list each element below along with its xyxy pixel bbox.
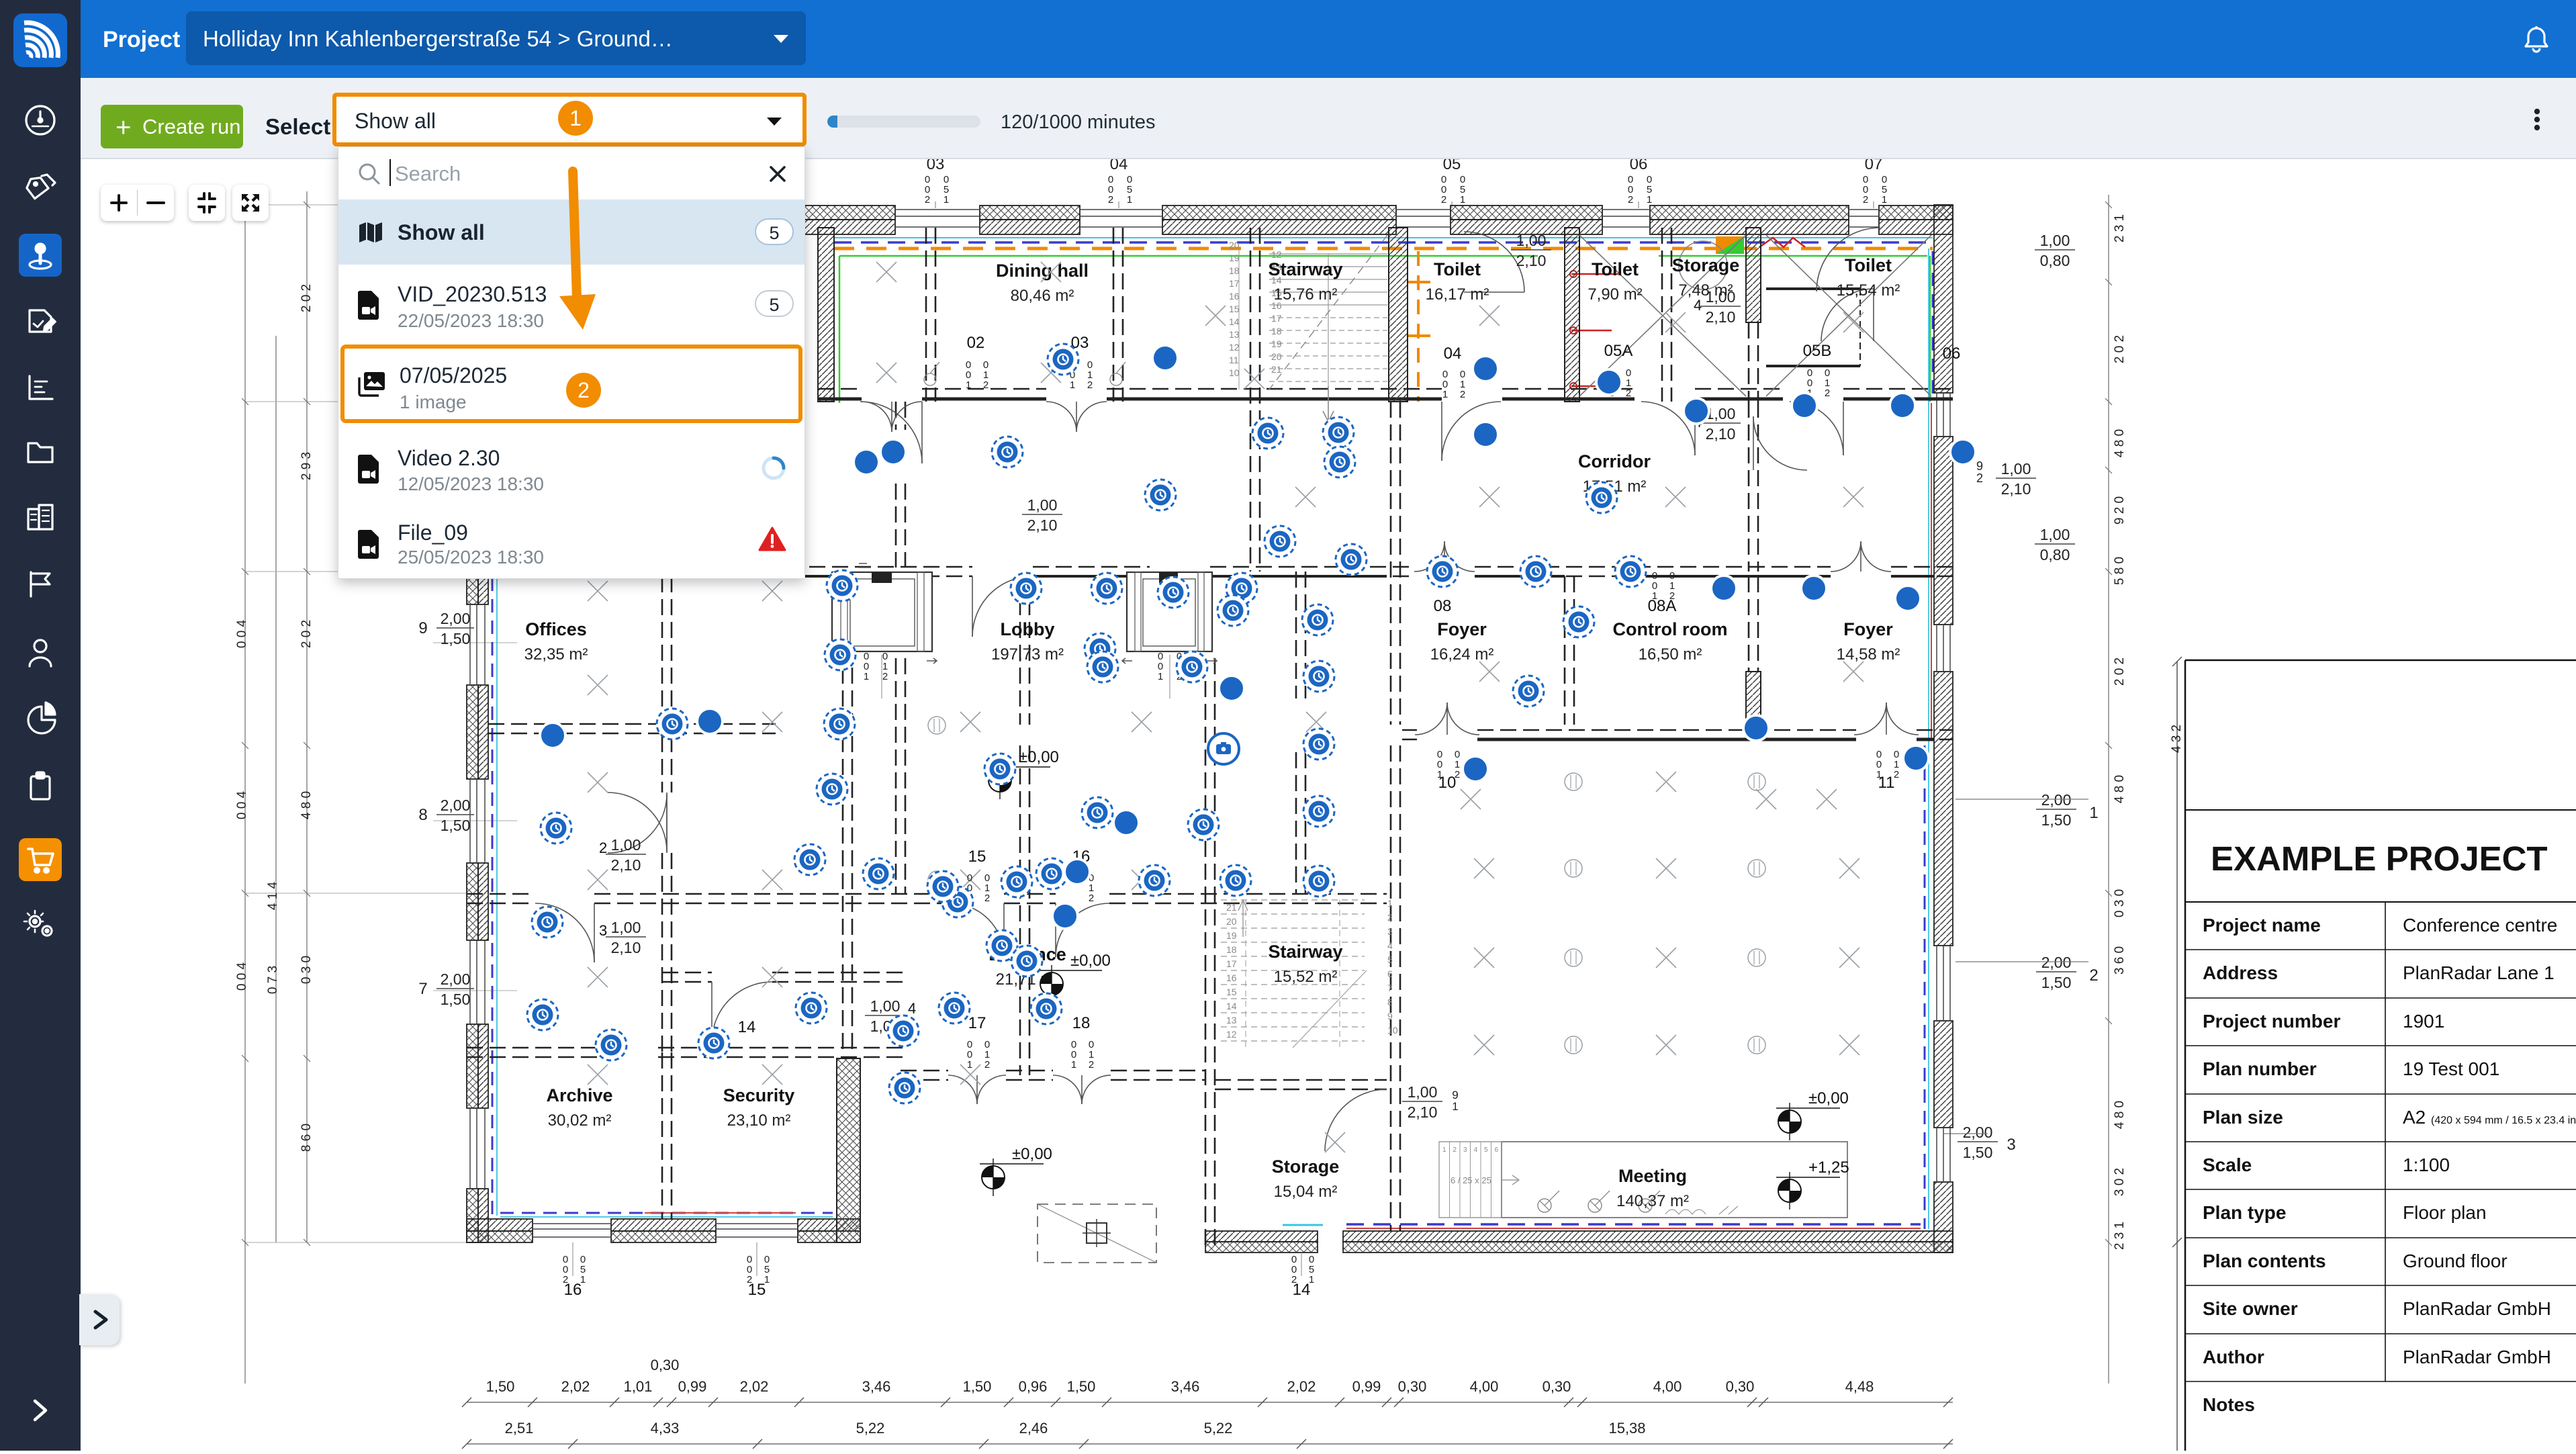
svg-text:12: 12 <box>1229 342 1240 353</box>
svg-text:4 8 0: 4 8 0 <box>2113 775 2127 803</box>
svg-text:2: 2 <box>882 671 888 682</box>
svg-text:2: 2 <box>563 1274 568 1285</box>
svg-text:Toilet: Toilet <box>1434 259 1481 279</box>
svg-text:8: 8 <box>418 806 427 824</box>
svg-text:2 0 2: 2 0 2 <box>2113 657 2127 686</box>
svg-text:Scale: Scale <box>2203 1154 2252 1175</box>
svg-text:Meeting: Meeting <box>1618 1166 1687 1186</box>
svg-text:3,46: 3,46 <box>1171 1378 1200 1395</box>
svg-text:2,00: 2,00 <box>2041 954 2072 971</box>
svg-text:Foyer: Foyer <box>1843 619 1893 639</box>
svg-text:20: 20 <box>1271 351 1282 362</box>
svg-text:6: 6 <box>1495 1146 1499 1154</box>
svg-text:05A: 05A <box>1604 342 1633 360</box>
svg-text:Plan number: Plan number <box>2203 1058 2317 1079</box>
svg-text:17: 17 <box>1271 313 1282 324</box>
svg-text:Storage: Storage <box>1272 1156 1340 1177</box>
svg-text:4,00: 4,00 <box>1653 1378 1682 1395</box>
svg-text:1,50: 1,50 <box>1067 1378 1096 1395</box>
svg-text:2: 2 <box>2089 966 2098 985</box>
svg-text:1:100: 1:100 <box>2403 1154 2450 1175</box>
svg-text:1,01: 1,01 <box>624 1378 653 1395</box>
svg-text:7: 7 <box>418 980 427 998</box>
svg-text:05: 05 <box>1443 159 1461 173</box>
svg-text:20: 20 <box>1226 916 1237 927</box>
svg-text:2 9 3: 2 9 3 <box>300 452 314 480</box>
svg-text:1: 1 <box>1442 389 1448 400</box>
svg-text:15,38: 15,38 <box>1608 1420 1645 1437</box>
svg-text:±0,00: ±0,00 <box>1012 1145 1052 1163</box>
svg-text:2: 2 <box>1669 590 1675 602</box>
svg-text:Control room: Control room <box>1613 619 1728 639</box>
svg-text:2 0 2: 2 0 2 <box>2113 335 2127 363</box>
svg-text:4 8 0: 4 8 0 <box>2113 429 2127 457</box>
svg-text:2: 2 <box>1460 389 1465 400</box>
svg-text:1: 1 <box>1158 671 1163 682</box>
svg-text:19: 19 <box>1271 338 1282 349</box>
svg-text:1: 1 <box>864 671 869 682</box>
svg-text:1: 1 <box>967 1059 972 1071</box>
svg-text:80,46 m²: 80,46 m² <box>1011 287 1074 305</box>
svg-text:2: 2 <box>1087 379 1093 391</box>
svg-text:0 0 4: 0 0 4 <box>235 962 249 991</box>
svg-text:0,80: 0,80 <box>2040 252 2070 269</box>
svg-text:2: 2 <box>1089 1059 1094 1071</box>
svg-text:2,10: 2,10 <box>1408 1103 1438 1121</box>
svg-text:2,10: 2,10 <box>611 939 641 956</box>
svg-text:11: 11 <box>1229 355 1239 365</box>
svg-text:9: 9 <box>418 619 427 637</box>
svg-text:2,10: 2,10 <box>1516 252 1547 269</box>
svg-text:2: 2 <box>983 379 988 391</box>
svg-text:Corridor: Corridor <box>1578 451 1651 471</box>
svg-text:4: 4 <box>908 1000 916 1017</box>
svg-text:05B: 05B <box>1803 342 1832 360</box>
svg-text:16: 16 <box>1229 291 1240 302</box>
svg-text:1,00: 1,00 <box>2001 460 2031 478</box>
svg-text:15: 15 <box>1229 304 1240 314</box>
svg-text:2: 2 <box>747 1274 752 1285</box>
svg-text:1: 1 <box>1647 194 1652 206</box>
svg-text:4,00: 4,00 <box>1470 1378 1499 1395</box>
svg-text:5: 5 <box>1387 954 1393 965</box>
svg-text:13: 13 <box>1226 1015 1237 1026</box>
svg-text:9 2 0: 9 2 0 <box>2113 496 2127 525</box>
svg-text:+1,25: +1,25 <box>1808 1158 1849 1177</box>
svg-text:1,00: 1,00 <box>870 997 901 1015</box>
svg-text:8 6 0: 8 6 0 <box>300 1124 314 1152</box>
svg-text:Stairway: Stairway <box>1268 259 1342 279</box>
svg-text:Conference centre: Conference centre <box>2403 915 2557 936</box>
svg-text:2,02: 2,02 <box>561 1378 590 1395</box>
svg-text:2 3 1: 2 3 1 <box>2113 1222 2127 1250</box>
svg-text:19: 19 <box>1229 253 1240 263</box>
svg-text:2,00: 2,00 <box>2041 791 2072 809</box>
svg-text:3: 3 <box>1463 1146 1467 1154</box>
svg-text:2: 2 <box>1628 194 1633 206</box>
svg-text:15,04 m²: 15,04 m² <box>1274 1183 1338 1201</box>
svg-text:±0,00: ±0,00 <box>1019 748 1059 766</box>
svg-text:2: 2 <box>1387 912 1393 923</box>
svg-text:2: 2 <box>984 893 990 904</box>
svg-text:1: 1 <box>1127 194 1132 206</box>
svg-text:7: 7 <box>1387 983 1393 993</box>
svg-text:15,54 m²: 15,54 m² <box>1837 281 1900 300</box>
svg-text:Plan type: Plan type <box>2203 1202 2286 1223</box>
svg-text:7,90 m²: 7,90 m² <box>1588 285 1642 304</box>
svg-text:5,22: 5,22 <box>1204 1420 1233 1437</box>
svg-text:2: 2 <box>1291 1274 1297 1285</box>
svg-text:2: 2 <box>1108 194 1113 206</box>
svg-text:2: 2 <box>984 1059 990 1071</box>
svg-text:1,50: 1,50 <box>963 1378 992 1395</box>
svg-text:18: 18 <box>1072 1014 1091 1032</box>
svg-text:16,50 m²: 16,50 m² <box>1639 645 1702 664</box>
svg-text:2: 2 <box>1626 388 1631 399</box>
svg-text:Offices: Offices <box>525 619 587 639</box>
svg-text:14: 14 <box>1226 1001 1237 1011</box>
svg-text:17: 17 <box>1226 958 1237 969</box>
svg-text:3 0 2: 3 0 2 <box>2113 1168 2127 1196</box>
svg-text:5: 5 <box>1484 1146 1488 1154</box>
svg-text:5,22: 5,22 <box>856 1420 885 1437</box>
svg-text:06: 06 <box>1943 345 1961 363</box>
svg-text:1,50: 1,50 <box>2041 811 2072 829</box>
svg-text:04: 04 <box>1444 345 1462 363</box>
svg-text:2,02: 2,02 <box>1287 1378 1316 1395</box>
svg-text:2: 2 <box>1863 194 1868 206</box>
svg-text:0 3 0: 0 3 0 <box>300 956 314 984</box>
svg-text:19 Test 001: 19 Test 001 <box>2403 1058 2499 1079</box>
svg-text:2: 2 <box>1825 388 1830 399</box>
svg-text:18: 18 <box>1229 265 1240 276</box>
svg-text:Archive: Archive <box>546 1085 612 1105</box>
svg-text:1: 1 <box>764 1274 770 1285</box>
svg-text:140,37 m²: 140,37 m² <box>1616 1192 1689 1210</box>
svg-text:08: 08 <box>1434 597 1452 615</box>
svg-text:4: 4 <box>1694 297 1702 314</box>
svg-text:1,00: 1,00 <box>1027 496 1058 514</box>
svg-text:2,00: 2,00 <box>441 797 471 814</box>
svg-text:Storage: Storage <box>1672 255 1740 275</box>
svg-text:3: 3 <box>599 922 607 939</box>
svg-text:1,00: 1,00 <box>611 836 641 854</box>
svg-text:2: 2 <box>1089 893 1094 904</box>
svg-text:±0,00: ±0,00 <box>1070 952 1111 970</box>
svg-text:Notes: Notes <box>2203 1394 2255 1415</box>
svg-text:19: 19 <box>1226 930 1237 941</box>
svg-text:2 3 1: 2 3 1 <box>2113 214 2127 242</box>
svg-text:4,48: 4,48 <box>1845 1378 1874 1395</box>
svg-text:10: 10 <box>1387 1025 1398 1036</box>
svg-text:15,52 m²: 15,52 m² <box>1274 968 1338 986</box>
svg-text:0,99: 0,99 <box>1352 1378 1381 1395</box>
svg-text:12: 12 <box>1226 1029 1237 1040</box>
svg-text:Plan contents: Plan contents <box>2203 1251 2326 1271</box>
svg-text:2,10: 2,10 <box>1706 308 1736 326</box>
svg-text:2,10: 2,10 <box>611 856 641 874</box>
svg-text:PlanRadar GmbH: PlanRadar GmbH <box>2403 1347 2551 1367</box>
svg-text:16,17 m²: 16,17 m² <box>1426 285 1489 304</box>
svg-text:Foyer: Foyer <box>1437 619 1487 639</box>
svg-text:4 1 4: 4 1 4 <box>266 881 280 910</box>
svg-text:2,00: 2,00 <box>1963 1124 1993 1141</box>
svg-text:06: 06 <box>1630 159 1648 173</box>
svg-text:0,80: 0,80 <box>2040 546 2070 563</box>
svg-text:4 8 0: 4 8 0 <box>2113 1101 2127 1129</box>
svg-text:14: 14 <box>1229 316 1240 327</box>
svg-text:1: 1 <box>1460 194 1465 206</box>
svg-text:1: 1 <box>1071 1059 1076 1071</box>
svg-text:16: 16 <box>1226 972 1237 983</box>
svg-text:20: 20 <box>1229 240 1240 251</box>
svg-text:2,10: 2,10 <box>1027 516 1058 534</box>
svg-text:2 0 2: 2 0 2 <box>300 620 314 648</box>
svg-text:03: 03 <box>927 159 945 173</box>
svg-text:0 7 3: 0 7 3 <box>266 966 280 994</box>
svg-text:Lobby: Lobby <box>1001 619 1055 639</box>
svg-text:13: 13 <box>1229 329 1240 340</box>
svg-text:1: 1 <box>1882 194 1887 206</box>
svg-text:1,00: 1,00 <box>1516 232 1547 249</box>
svg-text:3: 3 <box>1387 926 1393 937</box>
svg-text:1: 1 <box>1442 1146 1446 1154</box>
svg-text:1: 1 <box>966 379 971 391</box>
svg-text:4: 4 <box>1474 1146 1478 1154</box>
svg-text:4: 4 <box>1387 940 1393 951</box>
svg-text:1,50: 1,50 <box>441 630 471 647</box>
svg-text:10: 10 <box>1229 367 1240 378</box>
svg-text:2 0 2: 2 0 2 <box>300 284 314 312</box>
svg-text:14,58 m²: 14,58 m² <box>1837 645 1900 664</box>
svg-text:2,46: 2,46 <box>1019 1420 1048 1437</box>
svg-text:1,00: 1,00 <box>611 919 641 936</box>
svg-text:1,00: 1,00 <box>1408 1083 1438 1101</box>
svg-text:6 / 25 x 25: 6 / 25 x 25 <box>1451 1175 1491 1185</box>
svg-text:1: 1 <box>580 1274 586 1285</box>
svg-text:0 0 4: 0 0 4 <box>235 790 249 819</box>
svg-text:12: 12 <box>1271 249 1282 260</box>
svg-text:6: 6 <box>1387 968 1393 979</box>
svg-text:1,50: 1,50 <box>441 991 471 1008</box>
svg-text:PlanRadar Lane 1: PlanRadar Lane 1 <box>2403 962 2555 983</box>
svg-text:21: 21 <box>1271 364 1282 375</box>
svg-text:Author: Author <box>2203 1347 2264 1367</box>
svg-text:Address: Address <box>2203 962 2278 983</box>
svg-text:9: 9 <box>1976 459 1983 473</box>
svg-text:30,02 m²: 30,02 m² <box>548 1111 612 1130</box>
svg-text:0 3 0: 0 3 0 <box>2113 889 2127 917</box>
svg-text:0,96: 0,96 <box>1019 1378 1048 1395</box>
svg-text:16,24 m²: 16,24 m² <box>1430 645 1494 664</box>
svg-text:5 8 0: 5 8 0 <box>2113 557 2127 585</box>
svg-text:197,73 m²: 197,73 m² <box>991 645 1064 664</box>
svg-text:4,33: 4,33 <box>651 1420 680 1437</box>
svg-text:Stairway: Stairway <box>1268 942 1342 962</box>
svg-text:1: 1 <box>944 194 949 206</box>
svg-text:3: 3 <box>2007 1136 2015 1154</box>
svg-text:14: 14 <box>738 1018 756 1036</box>
svg-text:2,00: 2,00 <box>441 610 471 627</box>
svg-text:1: 1 <box>1437 769 1442 780</box>
svg-text:23,10 m²: 23,10 m² <box>727 1111 791 1130</box>
svg-text:3,46: 3,46 <box>862 1378 891 1395</box>
svg-text:15,76 m²: 15,76 m² <box>1274 285 1338 304</box>
svg-text:3 6 0: 3 6 0 <box>2113 946 2127 974</box>
svg-text:Project name: Project name <box>2203 915 2321 936</box>
svg-text:4 3 2: 4 3 2 <box>2170 725 2184 753</box>
svg-text:1,50: 1,50 <box>486 1378 515 1395</box>
svg-text:Plan size: Plan size <box>2203 1107 2283 1128</box>
svg-text:1,00: 1,00 <box>1706 288 1736 306</box>
svg-text:32,35 m²: 32,35 m² <box>524 645 588 664</box>
svg-text:1: 1 <box>1876 769 1882 780</box>
svg-text:1: 1 <box>1309 1274 1314 1285</box>
svg-text:4 8 0: 4 8 0 <box>300 791 314 819</box>
svg-text:2,00: 2,00 <box>441 970 471 988</box>
svg-text:EXAMPLE PROJECT: EXAMPLE PROJECT <box>2211 839 2548 878</box>
svg-text:02: 02 <box>967 334 985 352</box>
svg-text:04: 04 <box>1110 159 1128 173</box>
svg-text:18: 18 <box>1271 326 1282 336</box>
svg-text:1: 1 <box>1652 590 1657 602</box>
svg-text:2: 2 <box>1455 769 1460 780</box>
svg-text:9: 9 <box>1387 1011 1393 1021</box>
svg-text:2: 2 <box>925 194 930 206</box>
svg-text:1901: 1901 <box>2403 1011 2444 1032</box>
svg-text:2: 2 <box>599 839 607 856</box>
svg-text:1,50: 1,50 <box>2041 974 2072 991</box>
svg-text:1: 1 <box>2089 804 2098 822</box>
svg-text:1: 1 <box>1070 379 1075 391</box>
svg-text:15: 15 <box>1226 987 1237 997</box>
svg-text:2: 2 <box>1453 1146 1457 1154</box>
svg-text:2,10: 2,10 <box>2001 480 2031 498</box>
svg-text:2: 2 <box>1441 194 1446 206</box>
svg-text:8: 8 <box>1387 997 1393 1007</box>
svg-text:1,50: 1,50 <box>1963 1144 1993 1161</box>
svg-text:±0,00: ±0,00 <box>1808 1089 1849 1107</box>
svg-text:0 0 4: 0 0 4 <box>235 619 249 648</box>
svg-text:0,30: 0,30 <box>651 1357 680 1373</box>
svg-text:0,30: 0,30 <box>1398 1378 1427 1395</box>
svg-text:1: 1 <box>1387 898 1393 909</box>
svg-text:1,00: 1,00 <box>2040 232 2070 249</box>
svg-text:17: 17 <box>1229 278 1240 289</box>
svg-text:15: 15 <box>968 848 986 866</box>
svg-text:PlanRadar GmbH: PlanRadar GmbH <box>2403 1298 2551 1319</box>
svg-text:0,99: 0,99 <box>678 1378 707 1395</box>
svg-text:17: 17 <box>968 1014 986 1032</box>
svg-text:2,02: 2,02 <box>740 1378 769 1395</box>
svg-text:0,30: 0,30 <box>1543 1378 1571 1395</box>
svg-text:Security: Security <box>723 1085 795 1105</box>
svg-text:2: 2 <box>1976 471 1983 485</box>
svg-text:Toilet: Toilet <box>1845 255 1892 275</box>
svg-text:07: 07 <box>1865 159 1883 173</box>
svg-text:1,00: 1,00 <box>2040 526 2070 543</box>
svg-text:Floor plan: Floor plan <box>2403 1202 2487 1223</box>
svg-text:Toilet: Toilet <box>1592 259 1639 279</box>
svg-text:2,51: 2,51 <box>505 1420 534 1437</box>
svg-text:1,50: 1,50 <box>441 817 471 834</box>
svg-text:0,30: 0,30 <box>1726 1378 1755 1395</box>
svg-text:2,10: 2,10 <box>1706 425 1736 443</box>
svg-text:1: 1 <box>1452 1100 1458 1113</box>
svg-text:Ground floor: Ground floor <box>2403 1251 2508 1271</box>
svg-text:21: 21 <box>1226 902 1237 913</box>
svg-text:18: 18 <box>1226 944 1237 955</box>
svg-text:Site owner: Site owner <box>2203 1298 2298 1319</box>
svg-text:Project number: Project number <box>2203 1011 2340 1032</box>
svg-text:2: 2 <box>1894 769 1899 780</box>
